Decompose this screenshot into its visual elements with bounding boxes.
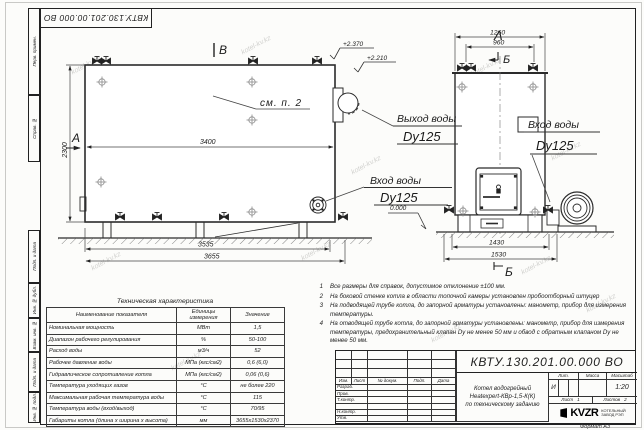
company-logo: KVZR <box>570 407 598 419</box>
door-bolt <box>514 206 517 209</box>
sheets-label: Листов <box>603 397 620 402</box>
tb-col-list: Лист <box>352 378 368 385</box>
see-note-label: см. п. 2 <box>260 98 302 109</box>
tech-table-header: Наименование показателя Единицы измерени… <box>47 308 285 323</box>
cell-name: Диапазон рабочего регулирования <box>47 334 177 346</box>
tb-col-docnum: № докум. <box>368 378 408 385</box>
inlet-title-side: Вход воды <box>370 175 421 187</box>
title-block: Изм. Лист № докум. Подп. Дата Разраб. Пр… <box>335 350 636 424</box>
cell-unit: °С <box>177 404 231 416</box>
cell-value: 70/95 <box>231 404 285 416</box>
fan-base <box>558 226 596 232</box>
cell-unit: МПа (кгс/см2) <box>177 369 231 381</box>
strip-label: Инв. № подл. <box>32 393 37 422</box>
level-ledge-value: +2.210 <box>367 55 387 62</box>
valve-icon <box>313 57 322 64</box>
sheet-value: 1 <box>577 397 580 402</box>
dim-overall: 3655 <box>204 254 220 261</box>
inlet-flange-icon <box>310 197 326 213</box>
table-row: Гидравлическое сопротивление котлаМПа (к… <box>47 369 285 381</box>
tb-col-podp: Подп. <box>408 378 432 385</box>
tb-col-izm: Изм. <box>336 378 352 385</box>
col-header: Значение <box>231 308 285 323</box>
sheet-cell: Лист 1 <box>548 397 592 404</box>
cell-value: 115 <box>231 392 285 404</box>
tech-table-title: Техническая характеристика <box>46 298 284 305</box>
scale-label: Масштаб <box>606 373 637 380</box>
cell-name: Гидравлическое сопротивление котла <box>47 369 177 381</box>
door-bolt <box>481 206 484 209</box>
drawing-sheet: kotel-kv.kz kotel-kv.kz kotel-kv.kz kote… <box>0 0 644 430</box>
cell-value: 52 <box>231 346 285 358</box>
table-row: Расход водым3/ч52 <box>47 346 285 358</box>
level-mark-ledge <box>354 62 396 72</box>
dim-top-inner: 960 <box>493 40 505 47</box>
door-latch-body <box>496 189 500 194</box>
table-row: Температура воды (вход/выход)°С70/95 <box>47 404 285 416</box>
lit-label: Лит. <box>548 373 578 380</box>
title-block-revision-grid: Изм. Лист № докум. Подп. Дата Разраб. Пр… <box>336 351 456 422</box>
dim-inner-width: 3400 <box>200 139 216 146</box>
cell-value: не более 220 <box>231 380 285 392</box>
ground-hatch <box>58 238 372 244</box>
sheet-label: Лист <box>561 397 573 402</box>
cell-value: 1,5 <box>231 323 285 335</box>
note-text: На боковой стенке котла в области топочн… <box>330 293 599 302</box>
cell-unit: МВт <box>177 323 231 335</box>
outlet-size: Dy125 <box>403 129 441 144</box>
valve-icon <box>467 64 476 71</box>
front-base <box>458 215 542 232</box>
section-label-A-side: А <box>71 131 80 145</box>
drawing-canvas: 3400 2300 3535 3655 В А см. п. 2 +2.370 … <box>0 0 644 300</box>
level-top-value: +2.370 <box>343 41 363 48</box>
product-name: Котел водогрейный Heatexpert-КВр-1,5-К(К… <box>456 373 548 422</box>
skid-post <box>103 222 111 238</box>
cell-unit: % <box>177 334 231 346</box>
note-text: На подводящей трубе котла, до запорной а… <box>330 302 634 319</box>
inlet-title-front: Вход воды <box>528 119 579 131</box>
table-row: Температура уходящих газов°Сне более 220 <box>47 380 285 392</box>
note-number: 3 <box>314 302 323 319</box>
cell-value: 0,6 (6,0) <box>231 357 285 369</box>
skid-post <box>196 222 204 238</box>
skid-ramp <box>215 223 298 237</box>
notes-block: 1Все размеры для справок, допустимое отк… <box>314 283 634 347</box>
company-name: КОТЕЛЬНЫЙ ЗАВОД РЭП <box>601 409 625 418</box>
dim-top-overall: 1260 <box>490 30 505 37</box>
note-item: 1Все размеры для справок, допустимое отк… <box>314 283 634 292</box>
note-number: 4 <box>314 320 323 346</box>
door-bolt <box>514 175 517 178</box>
col-header: Единицы измерения <box>177 308 231 323</box>
boiler-side-view <box>58 65 372 244</box>
inlet-size-front: Dy125 <box>536 138 574 153</box>
inlet-size-side: Dy125 <box>380 190 418 205</box>
skid-post <box>299 222 307 238</box>
cell-name: Температура воды (вход/выход) <box>47 404 177 416</box>
cell-name: Рабочее давление воды <box>47 357 177 369</box>
fan-duct <box>547 210 559 225</box>
table-row: Габариты котла (длина х ширина х высота)… <box>47 415 285 427</box>
cell-value: 50-100 <box>231 334 285 346</box>
cell-unit: °С <box>177 392 231 404</box>
company-cell: KVZR КОТЕЛЬНЫЙ ЗАВОД РЭП <box>548 404 637 422</box>
note-item: 2На боковой стенке котла в области топоч… <box>314 293 634 302</box>
cell-unit: м3/ч <box>177 346 231 358</box>
cell-name: Номинальная мощность <box>47 323 177 335</box>
lit-value: И <box>548 380 558 397</box>
dim-height: 2300 <box>62 142 69 159</box>
strip-cell-vzam-inv: Взам. инв. № <box>28 318 40 352</box>
sheets-value: 2 <box>624 397 627 402</box>
strip-label: Подп. и дата <box>32 358 37 387</box>
scale-value: 1:20 <box>606 380 637 397</box>
product-name-line: Heatexpert-КВр-1,5-К(К) <box>470 393 536 401</box>
leader-line <box>362 110 393 126</box>
table-row: Рабочее давление водыМПа (кгс/см2)0,6 (6… <box>47 357 285 369</box>
strip-cell-inv-podl: Инв. № подл. <box>28 392 40 423</box>
dim-overall-front: 1530 <box>491 252 506 259</box>
burner-fan <box>547 192 596 232</box>
strip-label: Взам. инв. № <box>32 321 37 349</box>
section-label-B-top: Б <box>503 54 510 66</box>
cell-unit: °С <box>177 380 231 392</box>
valve-icon <box>249 57 258 64</box>
cell-unit: МПа (кгс/см2) <box>177 357 231 369</box>
valve-icon <box>458 64 467 71</box>
note-number: 1 <box>314 283 323 292</box>
table-row: Максимальная рабочая температура воды°С1… <box>47 392 285 404</box>
valve-icon <box>102 57 111 64</box>
cell-name: Габариты котла (длина х ширина х высота) <box>47 415 177 427</box>
mass-value <box>578 380 606 397</box>
cell-value: 0,06 (0,6) <box>231 369 285 381</box>
outlet-scroll <box>338 93 358 113</box>
note-item: 4На отводящей трубе котла, до запорной а… <box>314 320 634 346</box>
note-number: 2 <box>314 293 323 302</box>
table-row: Номинальная мощностьМВт1,5 <box>47 323 285 335</box>
dim-base: 3535 <box>198 242 214 249</box>
valve-icon <box>93 57 102 64</box>
section-label-B: В <box>219 43 227 57</box>
cell-name: Температура уходящих газов <box>47 380 177 392</box>
level-mark-zero <box>388 213 426 229</box>
section-label-B-bottom: Б <box>505 265 513 279</box>
col-header: Наименование показателя <box>47 308 177 323</box>
company-logo-mark-icon <box>560 408 567 418</box>
valve-icon <box>339 213 348 220</box>
ground-hatch <box>436 232 614 238</box>
note-text: На отводящей трубе котла, до запорной ар… <box>330 320 634 346</box>
strip-cell-podp-data2: Подп. и дата <box>28 352 40 392</box>
sheets-cell: Листов 2 <box>592 397 637 404</box>
lit-cell <box>568 380 578 397</box>
cell-value: 3655х1530х2370 <box>231 415 285 427</box>
product-name-line: по техническому заданию <box>465 401 539 409</box>
outlet-title: Выход воды <box>397 113 456 125</box>
format-label: Формат А3 <box>560 424 630 430</box>
mass-label: Масса <box>578 373 606 380</box>
lit-cell <box>558 380 568 397</box>
valve-icon <box>445 206 454 213</box>
dim-base-front: 1430 <box>489 240 504 247</box>
company-name-line: ЗАВОД РЭП <box>601 413 625 417</box>
title-block-doc-number: КВТУ.130.201.00.000 ВО <box>456 351 637 373</box>
note-item: 3На подводящей трубе котла, до запорной … <box>314 302 634 319</box>
cell-unit: мм <box>177 415 231 427</box>
note-text: Все размеры для справок, допустимое откл… <box>330 283 506 292</box>
valve-icon <box>529 64 538 71</box>
tb-col-data: Дата <box>432 378 456 385</box>
level-zero-value: 0.000 <box>390 205 407 212</box>
tb-row-utv: Утв. <box>336 416 368 422</box>
tech-table: Техническая характеристика Наименование … <box>46 298 284 427</box>
door-bolt <box>481 175 484 178</box>
cell-name: Максимальная рабочая температура воды <box>47 392 177 404</box>
table-row: Диапазон рабочего регулирования%50-100 <box>47 334 285 346</box>
cell-name: Расход воды <box>47 346 177 358</box>
product-name-line: Котел водогрейный <box>474 385 531 393</box>
